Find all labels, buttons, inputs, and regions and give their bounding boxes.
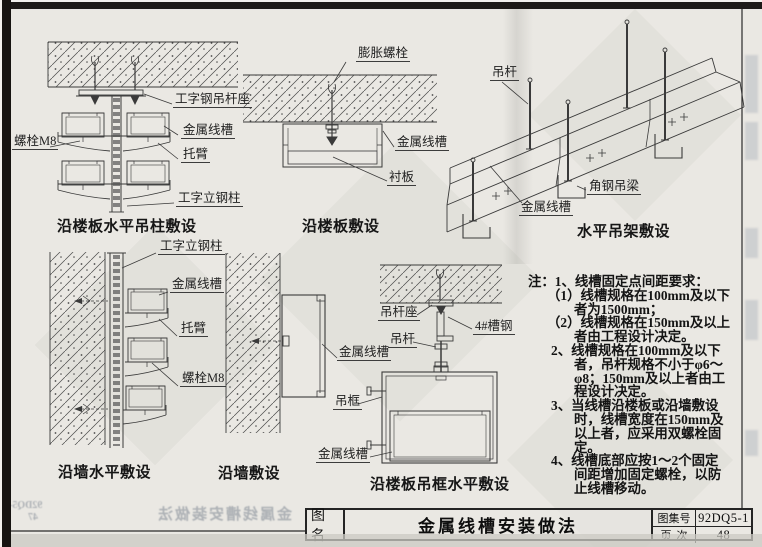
label-hanger-rod: 吊杆 — [388, 333, 417, 348]
notes-block: 注：1、线槽固定点间距要求： （1）线槽规格在100mm及以下 者为1500mm… — [528, 275, 756, 496]
note-line: 者，吊杆规格不小于φ6～ — [528, 358, 756, 372]
bleed-mark — [745, 430, 758, 456]
note-line: 间距增加固定螺栓，以防 — [528, 468, 756, 482]
bleed-through-page-no: 47 — [28, 512, 38, 523]
label-metal-wireway: 金属线槽 — [519, 201, 573, 216]
label-ibeam-column: 工字立钢柱 — [158, 240, 225, 255]
label-hanging-frame: 吊框 — [333, 395, 362, 410]
atlas-no-value: 92DQ5-1 — [696, 510, 751, 526]
label-angle-steel-beam: 角钢吊梁 — [587, 180, 641, 195]
label-ibeam-column: 工字立钢柱 — [176, 192, 243, 207]
scanned-drawing-page: 螺栓M8 工字钢吊杆座 金属线槽 托臂 工字立钢柱 沿楼板水平吊柱敷设 膨胀螺栓… — [0, 0, 762, 547]
label-hanger-rod: 吊杆 — [490, 66, 519, 81]
note-line: 以上者，应采用双螺栓固 — [528, 427, 756, 441]
bleed-mark — [745, 55, 758, 113]
diagram-floor-hanging-frame — [358, 265, 502, 463]
label-bracket-arm: 托臂 — [181, 148, 210, 163]
bleed-through-title: 金属线槽安装做法 — [148, 503, 300, 524]
atlas-no-label: 图集号 — [653, 510, 696, 526]
atlas-row: 图集号 92DQ5-1 — [653, 510, 751, 526]
note-line: 2、线槽规格在100mm及以下 — [528, 344, 756, 358]
note-line: 时，线槽宽度在150mm及 — [528, 413, 756, 427]
bleed-mark — [745, 122, 758, 160]
scan-edge-left — [0, 0, 11, 547]
label-metal-wireway: 金属线槽 — [316, 448, 370, 463]
diagram-wall-mounted — [226, 253, 337, 433]
diagram-horizontal-trapeze — [447, 20, 744, 238]
scan-edge-bottom — [0, 534, 762, 547]
label-metal-wireway: 金属线槽 — [181, 124, 235, 139]
caption-floor-mounted: 沿楼板敷设 — [302, 215, 380, 236]
caption-wall-mounted: 沿墙敷设 — [218, 462, 280, 483]
note-line: 者由工程设计决定。 — [528, 330, 756, 344]
caption-horizontal-trapeze: 水平吊架敷设 — [577, 220, 670, 241]
label-metal-wireway: 金属线槽 — [395, 136, 449, 151]
note-line: 3、当线槽沿楼板或沿墙敷设 — [528, 399, 756, 413]
diagram-floor-mounted — [243, 62, 437, 181]
caption-floor-hanging-column: 沿楼板水平吊柱敷设 — [57, 215, 197, 236]
label-bolt-m8: 螺栓M8 — [12, 135, 58, 150]
label-liner-plate: 衬板 — [387, 171, 416, 186]
label-bracket-arm: 托臂 — [179, 322, 208, 337]
label-ibeam-hanger-seat: 工字钢吊杆座 — [173, 93, 252, 108]
diagram-wall-horizontal — [50, 252, 178, 448]
caption-floor-hanging-frame: 沿楼板吊框水平敷设 — [370, 473, 510, 494]
label-expansion-bolt: 膨胀螺栓 — [356, 47, 410, 62]
scan-edge-top — [0, 0, 762, 9]
label-channel-steel: 4#槽钢 — [473, 320, 515, 335]
caption-wall-horizontal: 沿墙水平敷设 — [58, 461, 151, 482]
note-line: 注：1、线槽固定点间距要求： — [528, 275, 756, 289]
label-rod-seat: 吊杆座 — [378, 306, 420, 321]
label-metal-wireway: 金属线槽 — [170, 278, 224, 293]
bleed-mark — [745, 228, 758, 258]
note-line: （1）线槽规格在100mm及以下 — [528, 289, 756, 303]
note-line: 止线槽移动。 — [528, 482, 756, 496]
label-metal-wireway: 金属线槽 — [337, 346, 391, 361]
bleed-mark — [745, 300, 758, 340]
label-bolt-m8: 螺栓M8 — [180, 372, 226, 387]
